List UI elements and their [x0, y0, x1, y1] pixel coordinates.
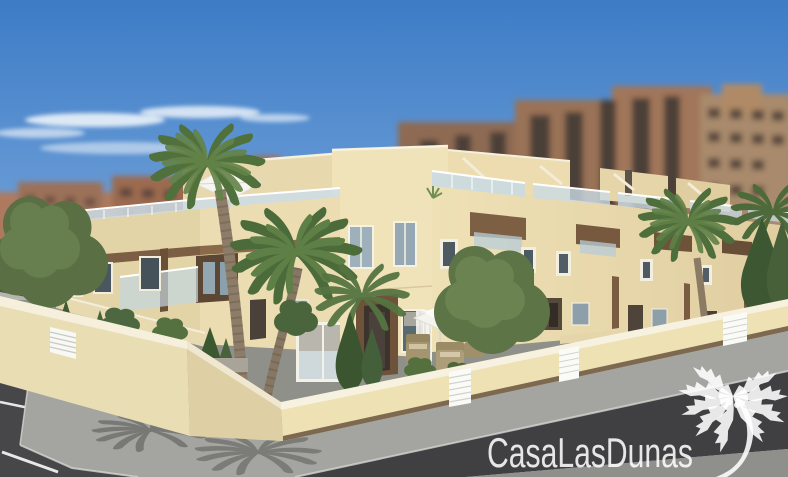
watermark-text: CasaLasDunas [487, 429, 693, 476]
wall-gate [449, 368, 471, 407]
wall-gate [723, 312, 747, 346]
wall-gate [559, 346, 579, 382]
property-render: CasaLasDunas [0, 0, 788, 477]
